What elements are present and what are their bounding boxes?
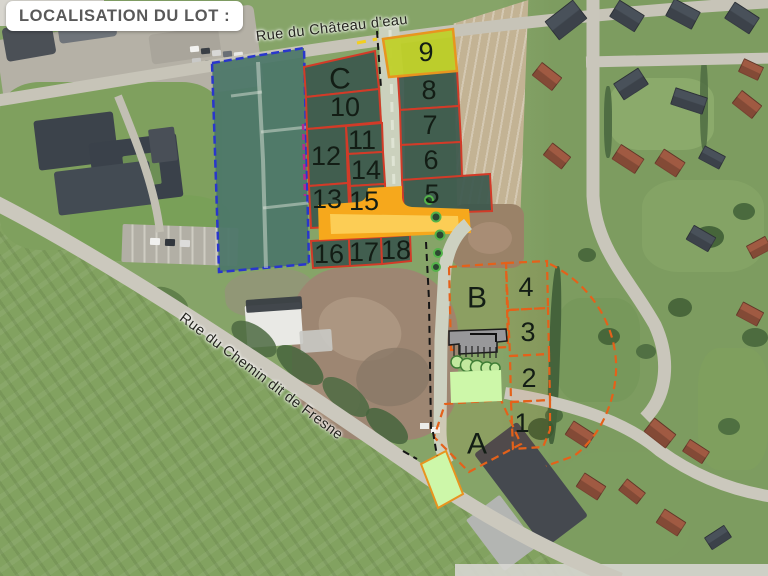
lot-label-16: 16 [314, 239, 344, 269]
lot-label-11: 11 [348, 125, 376, 155]
lot-label-C: C [329, 63, 351, 96]
lot-label-14: 14 [351, 155, 381, 185]
lot-label-17: 17 [349, 237, 379, 267]
lot-plan-layer: C 10 12 11 14 13 15 16 17 18 9 8 7 6 5 B… [0, 0, 768, 576]
lot-label-15: 15 [349, 186, 379, 216]
lot-label-4: 4 [518, 272, 533, 302]
yellow-markings [357, 39, 377, 43]
lot-label-9: 9 [418, 37, 433, 67]
lot-label-18: 18 [381, 235, 411, 265]
site-plan-map: C 10 12 11 14 13 15 16 17 18 9 8 7 6 5 B… [0, 0, 768, 576]
lot-label-12: 12 [311, 141, 341, 171]
cluster-boundary [546, 264, 616, 466]
parked-car [420, 423, 429, 429]
lot-label-10: 10 [330, 92, 360, 122]
lot-label-1: 1 [514, 408, 529, 438]
page-title: LOCALISATION DU LOT : [6, 1, 243, 31]
lot-label-7: 7 [422, 110, 437, 140]
lot-label-B: B [467, 282, 487, 315]
lot-label-3: 3 [520, 317, 535, 347]
lot-label-13: 13 [312, 184, 342, 214]
lot-label-A: A [467, 428, 487, 461]
lot-label-8: 8 [421, 75, 436, 105]
lot-label-5: 5 [424, 179, 439, 209]
green-area [450, 370, 502, 403]
lot-label-2: 2 [521, 363, 536, 393]
lot-label-6: 6 [423, 145, 438, 175]
